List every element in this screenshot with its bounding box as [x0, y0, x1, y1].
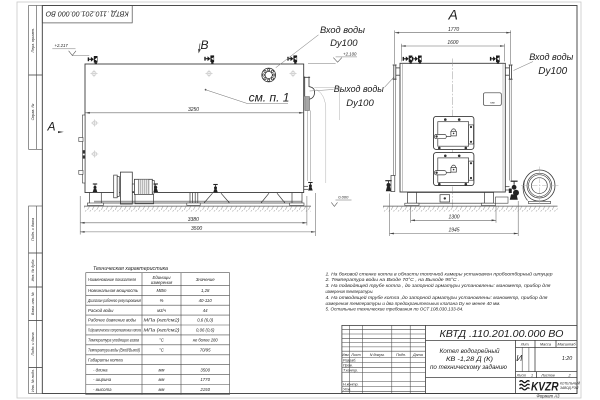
svg-text:А: А — [448, 7, 458, 23]
svg-text:см. п. 1: см. п. 1 — [249, 91, 290, 105]
svg-text:В: В — [201, 38, 209, 52]
svg-text:Пров.: Пров. — [343, 363, 353, 367]
svg-text:измерения температуры.: измерения температуры. — [326, 289, 374, 294]
svg-text:Дата: Дата — [412, 353, 423, 357]
svg-text:Подп. и дата: Подп. и дата — [31, 218, 35, 241]
svg-text:1,28: 1,28 — [201, 288, 210, 293]
svg-text:3250: 3250 — [188, 107, 199, 113]
svg-text:Подп. и дата: Подп. и дата — [31, 332, 35, 355]
svg-text:Температура воды (Вход/Выход): Температура воды (Вход/Выход) — [88, 348, 140, 353]
svg-text:0.000: 0.000 — [338, 194, 349, 199]
svg-text:Листов: Листов — [540, 373, 555, 377]
svg-text:не более 280: не более 280 — [193, 338, 219, 343]
svg-text:%: % — [160, 298, 164, 303]
svg-text:Т.контр.: Т.контр. — [343, 369, 358, 373]
svg-text:Значение: Значение — [196, 277, 215, 282]
svg-text:Техническая характеристика: Техническая характеристика — [93, 266, 168, 272]
svg-text:Вход воды: Вход воды — [529, 52, 573, 63]
svg-text:И: И — [516, 353, 523, 363]
svg-text:Масса: Масса — [540, 343, 551, 347]
svg-text:Лист: Лист — [516, 373, 527, 377]
svg-text:- высота: - высота — [93, 387, 112, 392]
svg-text:МПа (кгс/см2): МПа (кгс/см2) — [144, 328, 181, 333]
svg-text:МВт: МВт — [156, 288, 166, 293]
svg-text:+2.100: +2.100 — [343, 51, 357, 56]
svg-text:КВТД .110.201.00.000 ВО: КВТД .110.201.00.000 ВО — [45, 10, 129, 17]
svg-text:м3/ч: м3/ч — [157, 308, 167, 313]
svg-text:Формат А3: Формат А3 — [537, 394, 561, 399]
svg-text:мм: мм — [159, 377, 165, 382]
svg-text:1:20: 1:20 — [562, 356, 572, 362]
svg-text:3380: 3380 — [188, 217, 199, 223]
svg-text:Взам. инв. №: Взам. инв. № — [31, 292, 35, 315]
svg-text:А: А — [47, 119, 56, 133]
svg-text:5. Остальные технические треб: 5. Остальные технические требования по О… — [326, 307, 464, 312]
svg-text:Справ. №: Справ. № — [31, 104, 35, 121]
svg-text:КОТЕЛЬНЫЙ: КОТЕЛЬНЫЙ — [560, 382, 581, 386]
svg-text:Перв. примен.: Перв. примен. — [31, 28, 35, 53]
svg-text:Инв. № дубл.: Инв. № дубл. — [31, 259, 35, 282]
svg-text:40-110: 40-110 — [199, 298, 213, 303]
svg-text:N докум.: N докум. — [370, 353, 385, 357]
svg-text:Лист: Лист — [350, 353, 361, 357]
svg-text:мм: мм — [159, 387, 165, 392]
svg-text:2. Температура воды на Входе: 2. Температура воды на Входе 70°С , на В… — [324, 277, 459, 282]
svg-text:мм: мм — [159, 367, 165, 372]
svg-text:Вход воды: Вход воды — [320, 25, 365, 36]
svg-text:Рабочее давление воды: Рабочее давление воды — [88, 318, 137, 323]
svg-text:0,06 (0,6): 0,06 (0,6) — [196, 328, 215, 333]
svg-text:3. На подводящей трубе котла: 3. На подводящей трубе котла , до запорн… — [326, 283, 552, 288]
svg-text:КВТД .110.201.00.000 ВО: КВТД .110.201.00.000 ВО — [440, 329, 564, 340]
svg-text:измерения: измерения — [151, 280, 173, 285]
svg-text:44: 44 — [203, 308, 208, 313]
svg-text:4. На отводящей трубе котла ,: 4. На отводящей трубе котла ,до запорной… — [326, 295, 549, 300]
svg-text:2: 2 — [567, 373, 570, 377]
svg-text:Изм.: Изм. — [342, 353, 350, 357]
svg-text:КВ -1,28 Д (К): КВ -1,28 Д (К) — [446, 357, 493, 363]
svg-text:кзв: кзв — [490, 101, 495, 105]
svg-text:Утв.: Утв. — [343, 388, 351, 392]
svg-text:- ширина: - ширина — [93, 377, 112, 382]
svg-text:МПа (кгс/см2): МПа (кгс/см2) — [144, 318, 181, 323]
svg-text:1: 1 — [531, 373, 533, 377]
svg-text:Подп.: Подп. — [396, 353, 406, 357]
svg-text:по техническому заданию: по техническому заданию — [430, 365, 508, 371]
svg-text:Выход воды: Выход воды — [334, 84, 384, 95]
svg-text:1770: 1770 — [200, 377, 210, 382]
svg-text:Dy100: Dy100 — [346, 98, 374, 109]
svg-text:1600: 1600 — [447, 40, 458, 46]
svg-text:Температура уходящих газов: Температура уходящих газов — [88, 338, 140, 343]
svg-text:ЗАВОД РЭП: ЗАВОД РЭП — [560, 386, 579, 390]
svg-text:Dy100: Dy100 — [538, 66, 567, 77]
svg-text:1. На боковой стенке котла в: 1. На боковой стенке котла в области топ… — [326, 271, 554, 276]
svg-text:KVZR: KVZR — [531, 382, 559, 394]
svg-text:Разраб.: Разраб. — [343, 359, 356, 363]
svg-text:Котел водогрейный: Котел водогрейный — [440, 348, 501, 355]
svg-text:1300: 1300 — [448, 215, 459, 221]
svg-text:- длина: - длина — [93, 367, 108, 372]
svg-text:1770: 1770 — [448, 27, 459, 33]
svg-text:3500: 3500 — [191, 226, 202, 232]
svg-text:Н.контр.: Н.контр. — [343, 383, 359, 387]
svg-text:измерения температуры и два пр: измерения температуры и два предохраните… — [326, 301, 501, 306]
svg-text:70/95: 70/95 — [200, 348, 211, 353]
svg-text:+2.217: +2.217 — [55, 43, 69, 48]
svg-text:Диапазон рабочего регулировани: Диапазон рабочего регулирования — [87, 298, 141, 303]
svg-text:Dy100: Dy100 — [330, 38, 358, 49]
svg-text:Габариты котла: Габариты котла — [88, 357, 123, 362]
svg-text:0,6 (6,0): 0,6 (6,0) — [197, 318, 214, 323]
svg-text:Масштаб: Масштаб — [558, 343, 577, 347]
svg-text:Лит.: Лит. — [520, 343, 530, 347]
svg-text:1945: 1945 — [448, 228, 459, 234]
svg-text:Инв. № подл.: Инв. № подл. — [31, 369, 35, 392]
svg-text:Номинальная мощность: Номинальная мощность — [88, 288, 139, 293]
svg-text:2150: 2150 — [199, 387, 210, 392]
svg-text:3500: 3500 — [200, 367, 210, 372]
svg-text:Гидравлическое сопротивление к: Гидравлическое сопротивление котла — [88, 328, 141, 333]
svg-text:Наименование показателя: Наименование показателя — [88, 277, 137, 282]
svg-text:Расход воды: Расход воды — [88, 308, 114, 313]
